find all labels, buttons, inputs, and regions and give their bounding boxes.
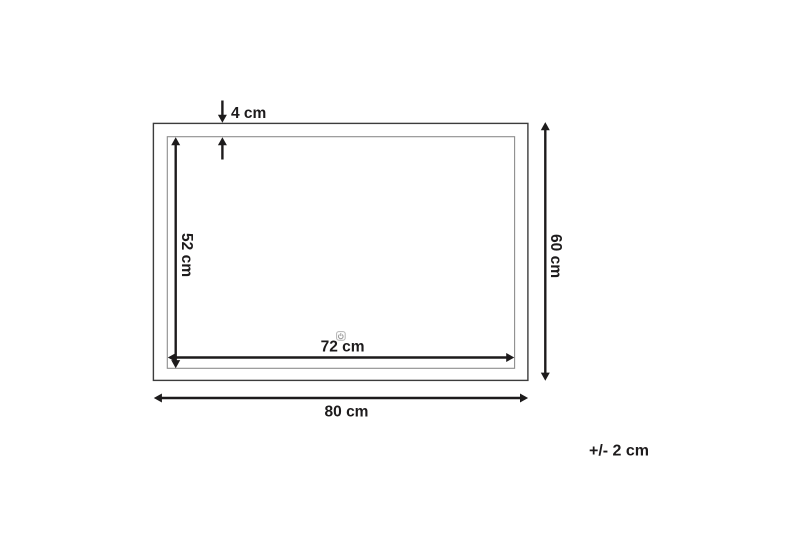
svg-text:+/- 2 cm: +/- 2 cm xyxy=(589,443,649,460)
svg-text:72 cm: 72 cm xyxy=(321,338,365,355)
svg-text:52 cm: 52 cm xyxy=(178,233,195,277)
svg-text:80 cm: 80 cm xyxy=(325,403,369,420)
svg-text:60 cm: 60 cm xyxy=(547,234,564,278)
svg-text:4 cm: 4 cm xyxy=(231,105,266,122)
